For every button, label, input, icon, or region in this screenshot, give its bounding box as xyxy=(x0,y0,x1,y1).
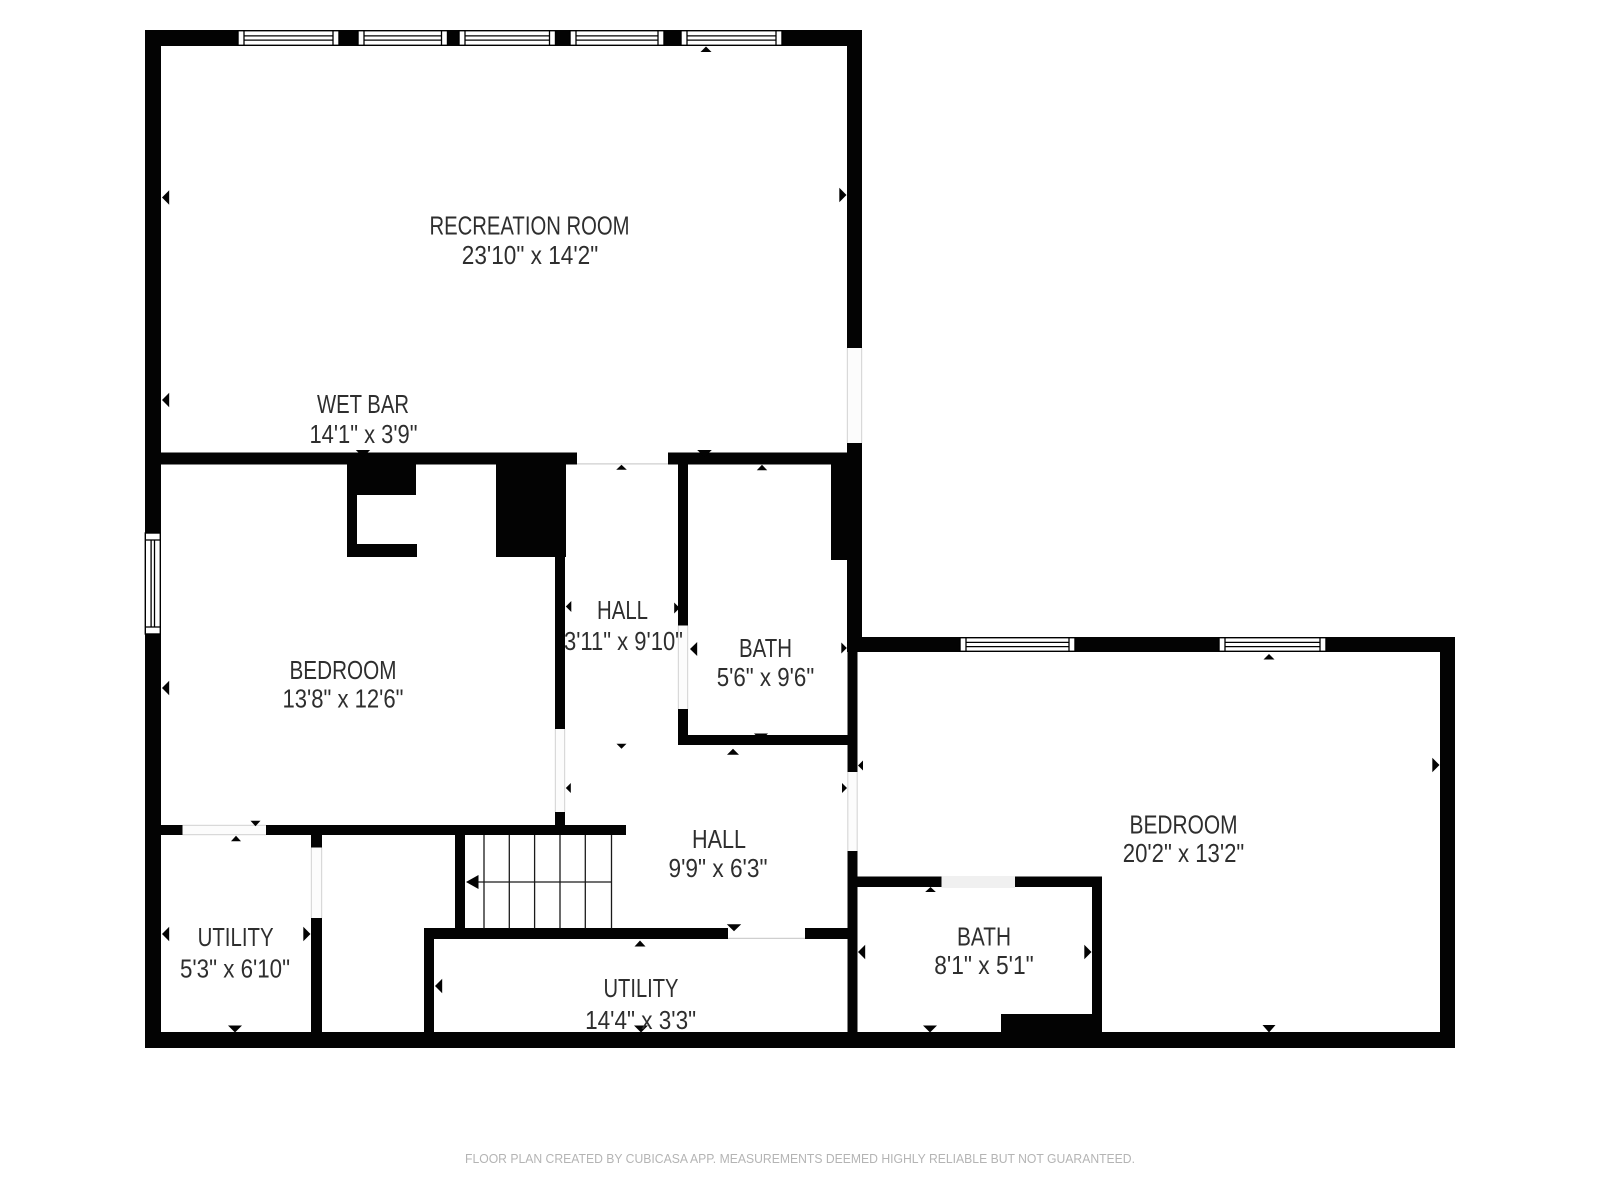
svg-text:14'4" x 3'3": 14'4" x 3'3" xyxy=(585,1005,696,1035)
svg-text:FLOOR PLAN CREATED BY CUBICASA: FLOOR PLAN CREATED BY CUBICASA APP. MEAS… xyxy=(465,1151,1135,1166)
svg-text:13'8" x 12'6": 13'8" x 12'6" xyxy=(283,684,404,714)
svg-text:5'6" x 9'6": 5'6" x 9'6" xyxy=(717,662,815,692)
svg-text:UTILITY: UTILITY xyxy=(604,973,679,1003)
svg-text:HALL: HALL xyxy=(692,824,746,854)
svg-text:BATH: BATH xyxy=(739,633,792,663)
svg-text:3'11" x 9'10": 3'11" x 9'10" xyxy=(564,626,683,656)
svg-text:UTILITY: UTILITY xyxy=(198,922,274,952)
svg-text:RECREATION ROOM: RECREATION ROOM xyxy=(430,211,630,241)
svg-text:BEDROOM: BEDROOM xyxy=(1130,810,1238,840)
svg-text:14'1" x 3'9": 14'1" x 3'9" xyxy=(310,419,418,449)
svg-text:5'3" x 6'10": 5'3" x 6'10" xyxy=(180,954,290,984)
svg-text:9'9" x 6'3": 9'9" x 6'3" xyxy=(669,853,768,883)
svg-text:BEDROOM: BEDROOM xyxy=(290,655,397,685)
svg-text:BATH: BATH xyxy=(957,922,1011,952)
svg-text:WET BAR: WET BAR xyxy=(317,389,409,419)
svg-text:8'1" x 5'1": 8'1" x 5'1" xyxy=(934,950,1034,980)
svg-text:23'10" x 14'2": 23'10" x 14'2" xyxy=(462,240,599,270)
svg-text:HALL: HALL xyxy=(597,595,648,625)
svg-text:20'2" x 13'2": 20'2" x 13'2" xyxy=(1123,838,1245,868)
